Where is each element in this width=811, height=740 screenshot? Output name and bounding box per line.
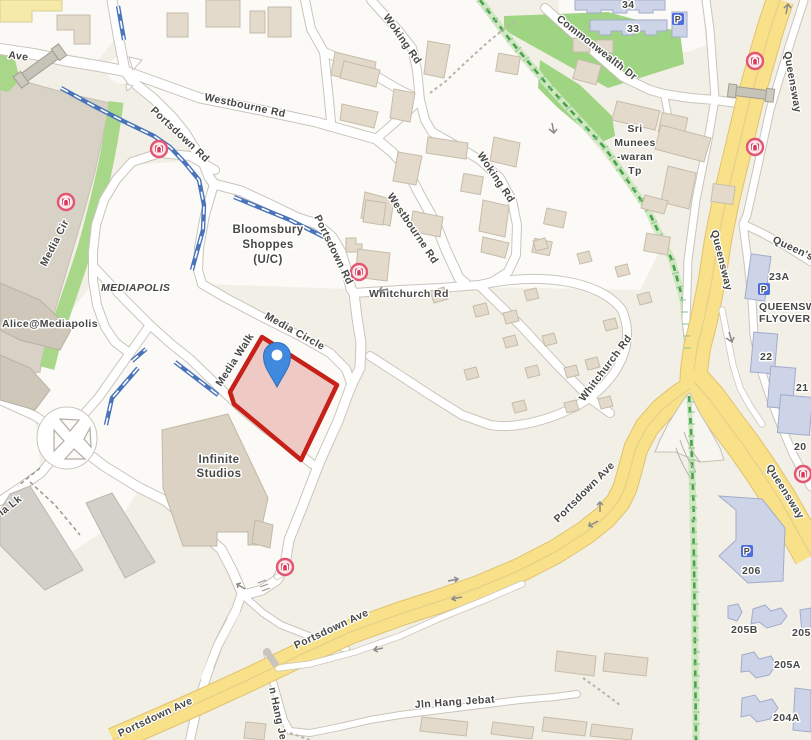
svg-text:23A: 23A [769,271,789,283]
svg-text:Tp: Tp [628,165,642,177]
svg-text:Munees: Munees [614,137,656,149]
svg-text:33: 33 [627,23,639,35]
svg-text:204A: 204A [773,712,800,724]
svg-text:20: 20 [794,441,806,453]
svg-text:-waran: -waran [617,151,653,163]
svg-text:21: 21 [796,382,808,394]
svg-text:Infinite: Infinite [199,454,240,466]
svg-text:FLYOVER: FLYOVER [759,313,810,325]
svg-text:Shoppes: Shoppes [242,239,293,251]
svg-text:Alice@Mediapolis: Alice@Mediapolis [2,318,98,330]
svg-text:Sri: Sri [627,123,642,135]
svg-text:205: 205 [792,627,811,639]
svg-text:(U/C): (U/C) [253,254,282,266]
svg-text:QUEENSW: QUEENSW [759,301,811,313]
svg-text:Studios: Studios [197,468,242,480]
svg-text:34: 34 [622,0,634,11]
svg-text:206: 206 [742,565,761,577]
svg-text:Bloomsbury: Bloomsbury [232,224,303,236]
svg-text:MEDIAPOLIS: MEDIAPOLIS [101,282,170,294]
svg-text:205A: 205A [774,659,801,671]
svg-text:22: 22 [760,351,772,363]
svg-text:205B: 205B [731,624,758,636]
